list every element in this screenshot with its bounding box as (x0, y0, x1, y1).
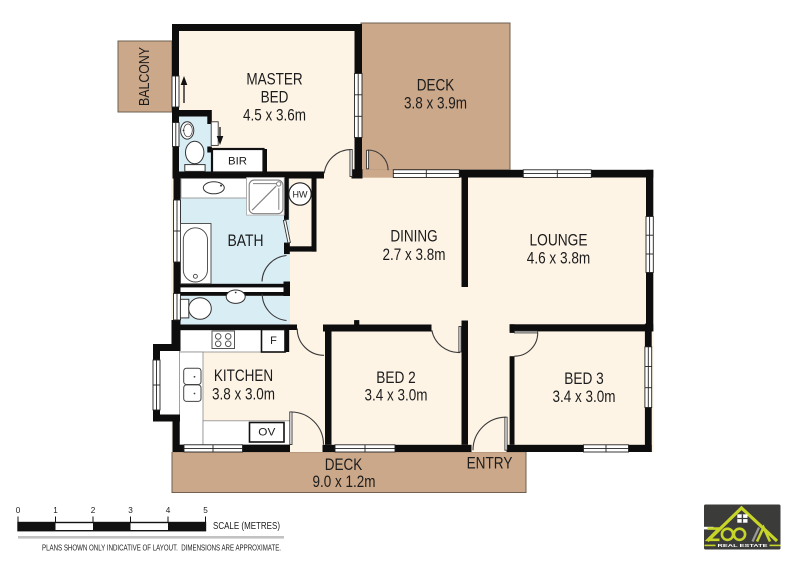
svg-text:4.6 x 3.8m: 4.6 x 3.8m (527, 249, 591, 268)
svg-text:ENTRY: ENTRY (467, 454, 513, 473)
svg-text:9.0 x 1.2m: 9.0 x 1.2m (313, 472, 376, 491)
svg-text:3.4 x 3.0m: 3.4 x 3.0m (553, 387, 616, 406)
svg-text:HW: HW (293, 189, 308, 199)
svg-text:LOUNGE: LOUNGE (530, 231, 588, 250)
svg-text:2: 2 (91, 506, 96, 515)
svg-text:4: 4 (166, 506, 171, 515)
svg-text:BED 3: BED 3 (564, 369, 604, 388)
svg-text:DECK: DECK (417, 76, 455, 95)
svg-text:MASTER: MASTER (246, 70, 302, 89)
svg-text:F: F (270, 335, 277, 347)
svg-text:5: 5 (203, 506, 208, 515)
svg-text:BED: BED (261, 88, 289, 107)
svg-text:3.4 x 3.0m: 3.4 x 3.0m (365, 385, 428, 404)
svg-text:REAL ESTATE: REAL ESTATE (718, 543, 768, 548)
svg-text:BED 2: BED 2 (376, 368, 416, 387)
svg-text:1: 1 (53, 506, 58, 515)
svg-text:BATH: BATH (228, 231, 264, 250)
svg-text:2.7 x 3.8m: 2.7 x 3.8m (383, 245, 446, 264)
svg-text:SCALE (METRES): SCALE (METRES) (213, 521, 280, 532)
svg-text:0: 0 (16, 506, 21, 515)
svg-text:OV: OV (258, 426, 276, 438)
svg-text:BALCONY: BALCONY (136, 47, 153, 106)
svg-text:3: 3 (128, 506, 133, 515)
svg-text:DINING: DINING (390, 227, 437, 246)
svg-text:BIR: BIR (228, 156, 247, 168)
svg-text:PLANS SHOWN ONLY INDICATIVE OF: PLANS SHOWN ONLY INDICATIVE OF LAYOUT. D… (42, 544, 281, 553)
svg-text:4.5 x 3.6m: 4.5 x 3.6m (243, 106, 306, 125)
svg-text:KITCHEN: KITCHEN (214, 366, 273, 385)
svg-text:3.8 x 3.9m: 3.8 x 3.9m (404, 94, 467, 113)
svg-text:3.8 x 3.0m: 3.8 x 3.0m (212, 385, 275, 404)
